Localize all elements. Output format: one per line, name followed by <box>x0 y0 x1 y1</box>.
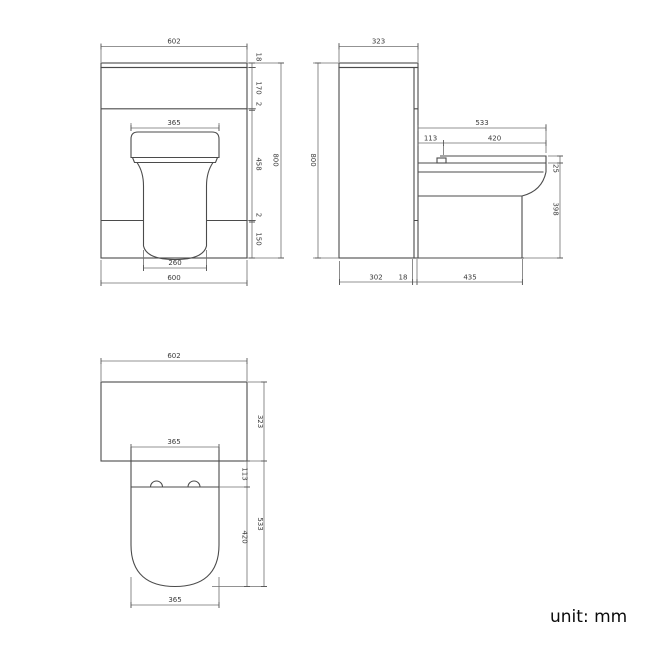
dim-front-cabinet-width: 600 <box>167 274 180 282</box>
unit-note: unit: mm <box>550 607 627 627</box>
dim-plan-seat-width: 365 <box>167 438 180 446</box>
dim-side-seat-thickness: 25 <box>552 164 560 173</box>
plan-view-seat-outline <box>131 447 219 587</box>
dim-side-hinge-offset: 113 <box>424 135 437 143</box>
dim-plan-seat-length: 420 <box>241 530 249 543</box>
dim-front-worktop-width: 602 <box>167 38 180 46</box>
side-view-cabinet-outline <box>339 63 524 258</box>
dim-plan-worktop-width: 602 <box>167 352 180 360</box>
dim-side-overall-height: 800 <box>309 153 317 166</box>
side-view-toilet-outline <box>418 156 546 258</box>
plan-view-dimension-lines <box>101 361 264 605</box>
dim-front-pan-width: 260 <box>168 259 181 267</box>
dim-side-panel-thickness: 18 <box>399 274 408 282</box>
plan-view-extension-lines <box>101 363 267 608</box>
dim-plan-pan-width: 365 <box>168 596 181 604</box>
dim-front-overall-height: 800 <box>272 153 280 166</box>
dim-front-drawer-height: 170 <box>255 81 263 94</box>
plan-view-cabinet-outline <box>101 382 247 461</box>
plan-view-dimension-ticks <box>101 358 267 608</box>
dim-side-pan-height: 398 <box>552 202 560 215</box>
side-view-dimension-ticks <box>315 44 563 286</box>
drawing-svg: 602 18 170 2 365 458 800 2 150 260 600 <box>0 0 650 650</box>
dim-front-top-gap: 2 <box>255 102 263 106</box>
dim-side-cabinet-depth: 302 <box>369 274 382 282</box>
side-view-dimension-lines <box>318 47 560 283</box>
side-view-extension-lines <box>313 43 563 285</box>
plan-view: 602 323 365 113 420 533 365 <box>101 352 267 608</box>
dim-side-seat-projection: 533 <box>475 119 488 127</box>
dim-front-seat-width: 365 <box>167 119 180 127</box>
dim-plan-cabinet-depth: 323 <box>256 415 264 428</box>
dim-side-seat-length: 420 <box>488 135 501 143</box>
dim-front-plinth-height: 150 <box>255 232 263 245</box>
side-view: 323 800 533 113 420 25 398 302 18 435 <box>309 38 563 286</box>
dim-side-pan-base-projection: 435 <box>463 274 476 282</box>
dim-plan-overall-depth: 533 <box>256 517 264 530</box>
dim-front-bottom-gap: 2 <box>255 213 263 217</box>
front-view-toilet-outline <box>131 132 219 260</box>
front-view-dimension-lines <box>101 47 281 284</box>
front-view-cabinet-outline <box>101 63 247 258</box>
dim-plan-hinge-offset: 113 <box>241 467 249 480</box>
dim-side-worktop-depth: 323 <box>372 38 385 46</box>
dim-front-worktop-thickness: 18 <box>255 53 263 62</box>
front-view: 602 18 170 2 365 458 800 2 150 260 600 <box>101 38 284 287</box>
dim-front-middle-height: 458 <box>255 157 263 170</box>
technical-drawing-page: 602 18 170 2 365 458 800 2 150 260 600 <box>0 0 650 650</box>
